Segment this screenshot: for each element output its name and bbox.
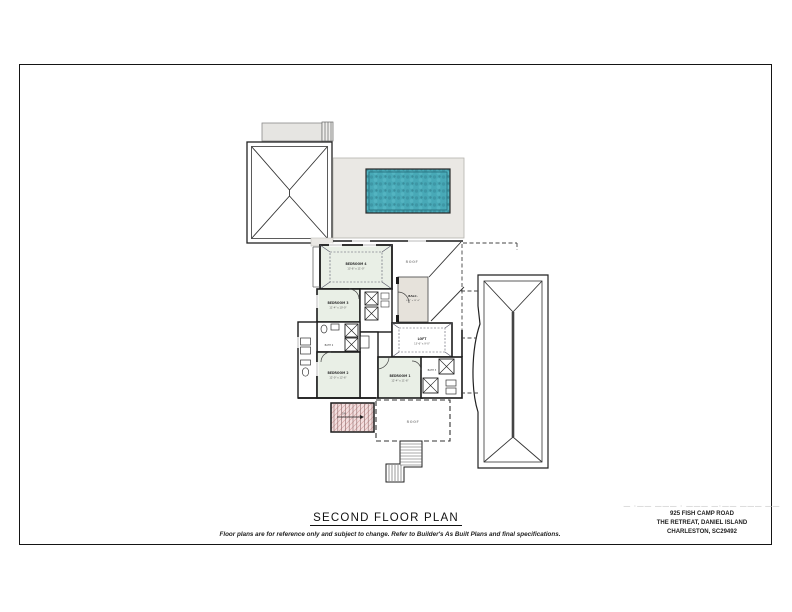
- shower-fixture: [365, 292, 378, 305]
- tub-fixture: [345, 338, 358, 351]
- swimming-pool: [366, 169, 450, 213]
- address-line-3: CHARLESTON, SC29492: [622, 528, 782, 537]
- hall: [360, 332, 378, 398]
- linen-closet: [360, 336, 369, 348]
- loft-dim: 13'-6" x 9'-0": [414, 343, 430, 346]
- room-loft: LOFT 13'-6" x 9'-0": [392, 323, 452, 357]
- bedroom4-dim: 13'-6" x 11'-0": [347, 268, 364, 271]
- toilet: [302, 368, 308, 376]
- utility-column: [360, 289, 392, 332]
- balcony: BALC. 6'-0" x 12'-6": [396, 277, 428, 322]
- bedroom1-label: BEDROOM 1: [390, 374, 411, 378]
- vanity-sink: [446, 388, 456, 394]
- address-line-1: 925 FISH CAMP ROAD: [622, 510, 782, 519]
- bedroom3-label: BEDROOM 3: [328, 301, 349, 305]
- bath3-label: BATH 3: [428, 369, 437, 372]
- disclaimer-text: Floor plans are for reference only and s…: [180, 531, 600, 538]
- loft-label: LOFT: [418, 337, 428, 341]
- dryer: [381, 301, 389, 307]
- room-bedroom2: BEDROOM 2 12'-0" x 12'-6": [315, 352, 360, 398]
- interior-stairs: DN: [331, 403, 374, 432]
- toilet: [321, 325, 327, 333]
- room-bedroom3: BEDROOM 3 11'-4" x 10'-0": [315, 289, 360, 322]
- shower-fixture: [439, 359, 454, 374]
- room-bedroom1: BEDROOM 1 12'-4" x 11'-6": [378, 357, 422, 398]
- bath2-label: BATH 2: [325, 344, 334, 347]
- title-block: — ·—— ——— · ——— —·—— ——— —— 925 FISH CAM…: [622, 502, 782, 537]
- vanity-sink: [331, 324, 339, 330]
- bedroom1-dim: 12'-4" x 11'-6": [391, 380, 408, 383]
- address-line-2: THE RETREAT, DANIEL ISLAND: [622, 519, 782, 528]
- balcony-label: BALC.: [408, 294, 418, 298]
- vanity-sink: [446, 380, 456, 386]
- shower-fixture: [345, 324, 358, 337]
- hip-roof-northwest: [247, 142, 332, 243]
- room-bedroom4: BEDROOM 4 13'-6" x 11'-0": [320, 243, 392, 289]
- bedroom2-dim: 12'-0" x 12'-6": [329, 377, 346, 380]
- west-porch-edge: [313, 247, 320, 287]
- room-bath3: BATH 3: [421, 357, 462, 398]
- roof-lower-label: ROOF: [407, 420, 420, 424]
- bedroom3-dim: 11'-4" x 10'-0": [329, 307, 346, 310]
- exterior-stairs: [386, 441, 422, 482]
- stair-direction-label: DN: [342, 413, 346, 416]
- closet-fixture: [423, 378, 438, 393]
- west-strip: [296, 322, 317, 398]
- bedroom4-label: BEDROOM 4: [346, 262, 368, 266]
- upper-deck: [262, 122, 333, 141]
- sheet-title-text: SECOND FLOOR PLAN: [310, 512, 462, 526]
- hip-roof-east: [461, 275, 548, 468]
- roof-region-lower: ROOF: [376, 400, 450, 441]
- balcony-dim: 6'-0" x 12'-6": [406, 300, 420, 302]
- drawing-sheet: ROOF BALC. 6'-0" x 12'-6" BEDROOM 4 13'-…: [0, 0, 792, 612]
- washer: [381, 293, 389, 299]
- bedroom2-label: BEDROOM 2: [328, 371, 349, 375]
- redacted-owner-name: — ·—— ——— · ——— —·—— ——— ——: [622, 502, 782, 510]
- pool-deck: [311, 158, 464, 246]
- room-bath2: BATH 2: [317, 322, 360, 352]
- closet-fixture: [365, 307, 378, 320]
- roof-upper-label: ROOF: [406, 260, 419, 264]
